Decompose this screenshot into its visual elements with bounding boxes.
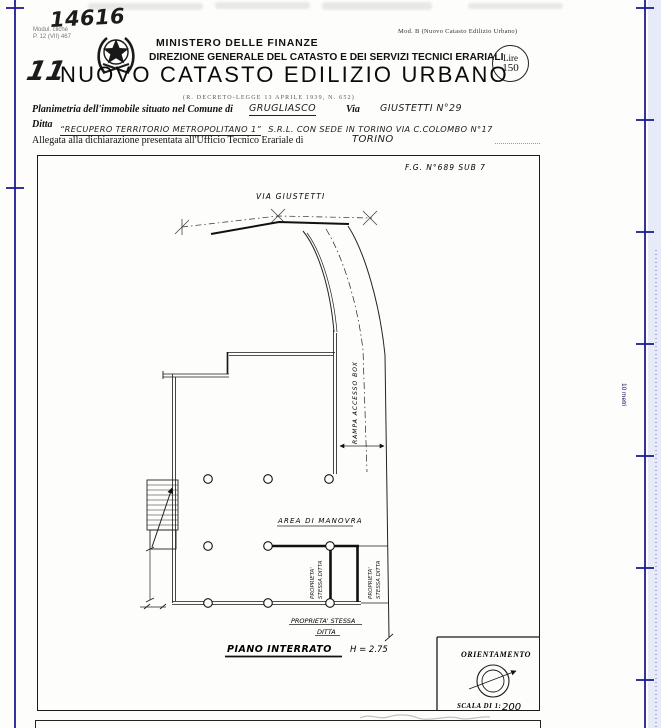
registration-cross (6, 187, 24, 189)
mod-b-label: Mod. B (Nuovo Catasto Edilizio Urbano) (398, 28, 517, 35)
svg-text:STESSA DITTA: STESSA DITTA (376, 560, 382, 599)
registration-cross (636, 455, 654, 457)
right-registration-line (644, 0, 646, 728)
registration-cross (6, 7, 24, 9)
form-small-print-line2: P. 12 (VII) 467 (33, 34, 71, 41)
registration-cross (636, 231, 654, 233)
form-row-comune-label: Planimetria dell'immobile situato nel Co… (32, 104, 233, 115)
photocopy-smudge (468, 3, 563, 9)
page-title: NUOVO CATASTO EDILIZIO URBANO (60, 62, 509, 88)
comune-value: GRUGLIASCO (249, 103, 316, 116)
form-small-print: Modul. cliché P. 12 (VII) 467 (33, 27, 71, 41)
orientation-box (437, 637, 540, 710)
via-label: Via (346, 104, 360, 115)
ruler-label: 10 metri (620, 383, 627, 406)
perforation-dots (655, 250, 657, 728)
area-label: AREA DI MANOVRA (277, 517, 363, 525)
svg-text:PROPRIETA': PROPRIETA' (310, 567, 316, 599)
ditta-firm-rest: S.R.L. CON SEDE IN TORINO VIA C.COLOMBO … (268, 124, 492, 134)
floor-plan: F.G. N°689 SUB 7 VIA GIUSTETTI RAMPA ACC… (37, 155, 540, 711)
via-value: GIUSTETTI N°29 (380, 103, 462, 114)
street-label: VIA GIUSTETTI (256, 192, 325, 201)
form-small-print-line1: Modul. cliché (33, 27, 71, 34)
property-note-line1: PROPRIETA' STESSA (291, 617, 355, 625)
property-note-line2: DITTA (317, 628, 336, 636)
ufficio-value: TORINO (352, 134, 394, 145)
ramp-label: RAMPA ACCESSO BOX (352, 361, 359, 444)
ministry-line: MINISTERO DELLE FINANZE (156, 37, 318, 49)
property-labels-vertical: PROPRIETA' STESSA DITTA PROPRIETA' STESS… (310, 560, 382, 599)
dotted-leader (495, 137, 540, 144)
next-section-box (35, 720, 541, 728)
registration-cross (636, 567, 654, 569)
floor-height: H = 2.75 (350, 645, 388, 655)
svg-text:STESSA DITTA: STESSA DITTA (318, 560, 324, 599)
registration-cross (636, 343, 654, 345)
sheet-reference: F.G. N°689 SUB 7 (405, 163, 486, 172)
floor-label: PIANO INTERRATO (227, 644, 332, 655)
orientation-label: ORIENTAMENTO (461, 650, 531, 659)
registration-cross (636, 7, 654, 9)
scale-value: 200 (502, 702, 521, 711)
page-subtitle: (R. DECRETO-LEGGE 13 APRILE 1939, N. 652… (183, 95, 355, 101)
photocopy-smudge (215, 2, 310, 9)
ditta-label: Ditta (32, 119, 53, 130)
registration-cross (636, 679, 654, 681)
scanned-cadastral-document: 10 metri 14616 Modul. cliché P. 12 (VII)… (0, 0, 661, 728)
scale-label: SCALA DI 1: (457, 702, 501, 710)
svg-text:PROPRIETA': PROPRIETA' (368, 567, 374, 599)
left-registration-line (14, 0, 16, 728)
allegata-label: Allegata alla dichiarazione presentata a… (32, 135, 303, 146)
registration-cross (636, 119, 654, 121)
photocopy-smudge (322, 2, 432, 10)
